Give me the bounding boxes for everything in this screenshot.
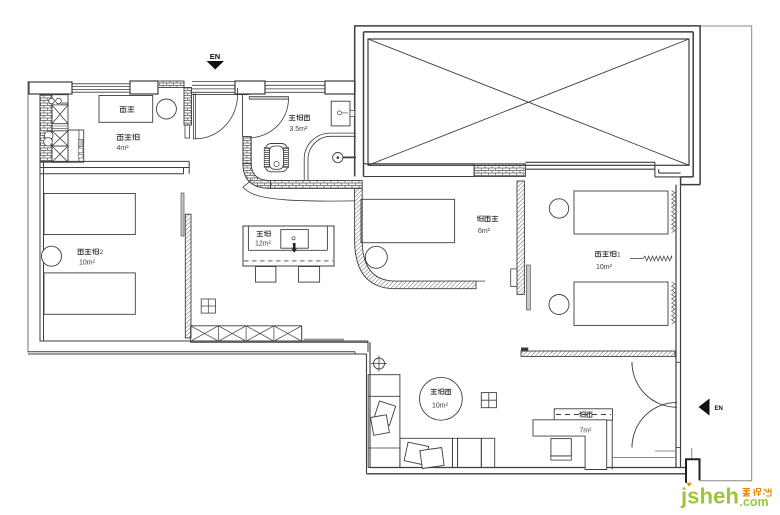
svg-text:1: 1	[617, 251, 621, 258]
svg-text:jsheh: jsheh	[680, 484, 739, 509]
svg-text:6m²: 6m²	[478, 228, 491, 235]
svg-text:.com: .com	[740, 495, 769, 509]
svg-text:10m²: 10m²	[596, 264, 613, 271]
svg-text:2: 2	[100, 249, 104, 256]
svg-text:3.5m²: 3.5m²	[289, 126, 308, 133]
svg-text:10m²: 10m²	[79, 260, 96, 267]
svg-text:EN: EN	[715, 406, 723, 412]
svg-text:10m²: 10m²	[432, 403, 449, 410]
svg-text:4m²: 4m²	[116, 145, 129, 152]
svg-text:12m²: 12m²	[255, 241, 272, 248]
svg-text:7m²: 7m²	[579, 428, 592, 435]
svg-text:EN: EN	[210, 52, 220, 61]
